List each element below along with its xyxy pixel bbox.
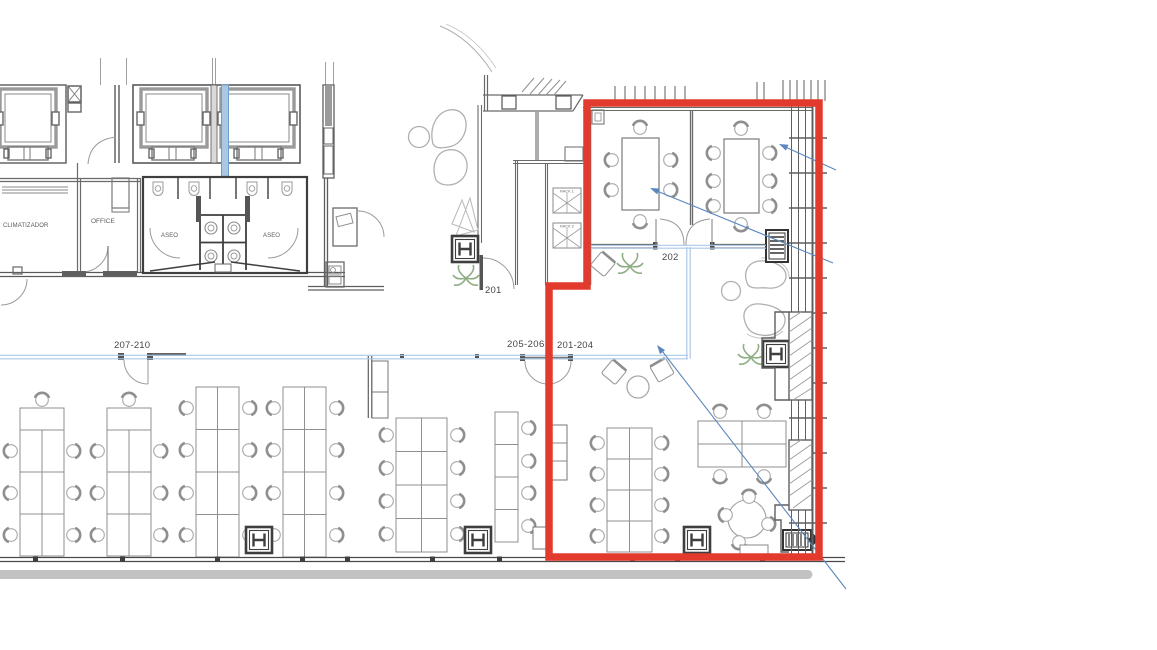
desk-zone-left — [4, 356, 388, 557]
door-arc — [82, 246, 108, 272]
column-icon — [246, 527, 272, 553]
elevator-bank — [0, 58, 334, 195]
toilet-block — [143, 177, 307, 273]
corridor-doors — [118, 353, 573, 384]
entry-and-rack-room: RACK 1 RACK 2 — [478, 105, 591, 290]
svg-text:RACK 2: RACK 2 — [560, 225, 574, 229]
toilet-icon — [228, 222, 240, 234]
rack-2-box: RACK 2 — [553, 223, 581, 248]
door-arc — [1, 279, 27, 305]
column-icon — [452, 236, 478, 262]
rack-1-box: RACK 1 — [553, 188, 581, 213]
floor-plan-canvas: RACK 1 RACK 2 — [0, 0, 1157, 650]
meeting-table-8 — [707, 122, 777, 232]
column-square-icon — [556, 96, 571, 109]
door-arc — [88, 137, 116, 164]
round-table — [719, 490, 776, 550]
door-202-arcs — [660, 219, 710, 245]
door-201-arc — [483, 258, 514, 289]
toilet-icon — [228, 250, 240, 262]
door-arc — [525, 361, 571, 384]
column-icon — [684, 527, 710, 553]
urinal-icon — [247, 182, 257, 196]
entrance-canopy — [440, 24, 583, 111]
desk-zone-right — [552, 405, 786, 557]
floor-plan-drawing: RACK 1 RACK 2 — [0, 0, 1157, 650]
urinal-icon — [282, 182, 292, 196]
column-icon — [763, 341, 789, 367]
service-room — [308, 85, 384, 290]
door-arc — [124, 360, 148, 384]
meeting-rooms — [583, 108, 812, 250]
meeting-table-6 — [605, 121, 678, 229]
column-square-icon — [502, 96, 516, 109]
hatched-column-icon — [68, 86, 81, 112]
door-leaf — [480, 255, 484, 290]
triangle-shrub — [452, 198, 478, 236]
corridor-datum-lines — [0, 245, 766, 358]
urinal-icon — [153, 182, 163, 196]
column-icon — [465, 527, 491, 553]
urinal-icon — [189, 182, 199, 196]
door-arc — [358, 211, 384, 237]
wall-switch-box — [592, 110, 604, 124]
bottom-facade — [0, 557, 845, 575]
toilet-icon — [205, 250, 217, 262]
toilet-icon — [205, 222, 217, 234]
svg-text:RACK 1: RACK 1 — [560, 190, 574, 194]
panel-icon — [766, 230, 788, 262]
